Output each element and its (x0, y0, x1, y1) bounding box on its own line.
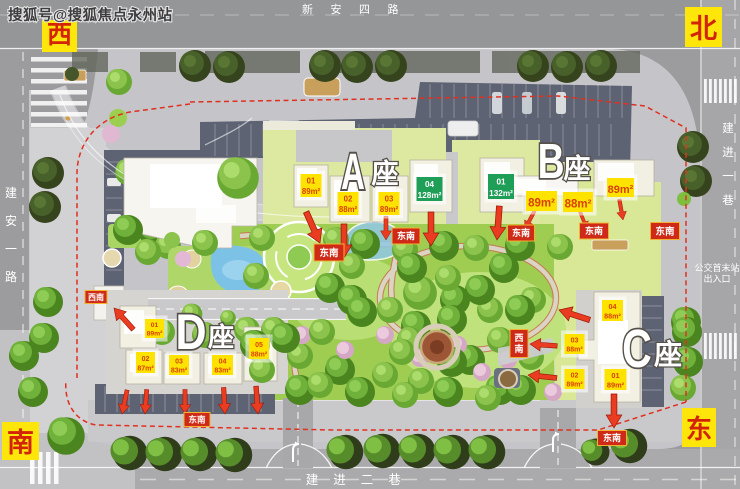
svg-text:东南: 东南 (655, 225, 675, 237)
svg-text:南: 南 (7, 428, 34, 458)
svg-text:04: 04 (425, 180, 435, 189)
svg-text:东南: 东南 (512, 227, 530, 238)
svg-text:03: 03 (385, 195, 394, 204)
svg-text:04: 04 (219, 358, 227, 365)
svg-text:建: 建 (5, 186, 17, 200)
svg-text:02: 02 (571, 372, 579, 379)
svg-text:01: 01 (496, 178, 506, 187)
svg-text:83m²: 83m² (214, 368, 231, 375)
svg-text:一: 一 (5, 242, 17, 256)
svg-text:01: 01 (151, 322, 159, 329)
svg-text:搜狐号@搜狐焦点永州站: 搜狐号@搜狐焦点永州站 (8, 6, 173, 24)
svg-text:建: 建 (722, 121, 734, 135)
svg-text:北: 北 (690, 14, 717, 44)
svg-text:巷: 巷 (722, 194, 734, 207)
svg-text:88m²: 88m² (604, 312, 621, 321)
svg-text:88m²: 88m² (565, 199, 592, 211)
svg-text:89m²: 89m² (607, 381, 625, 390)
svg-text:座: 座 (654, 338, 682, 370)
svg-text:87m²: 87m² (137, 366, 154, 373)
svg-text:座: 座 (372, 158, 399, 189)
svg-text:88m²: 88m² (566, 347, 583, 354)
svg-text:安: 安 (5, 213, 17, 228)
svg-text:128m²: 128m² (418, 191, 442, 200)
svg-text:出入口: 出入口 (703, 273, 730, 284)
svg-text:01: 01 (307, 177, 316, 186)
svg-text:B: B (538, 135, 565, 189)
svg-text:座: 座 (564, 153, 591, 184)
svg-text:89m²: 89m² (147, 331, 164, 338)
svg-text:东南: 东南 (319, 247, 339, 259)
svg-text:A: A (341, 144, 365, 201)
svg-text:03: 03 (571, 337, 579, 344)
svg-text:89m²: 89m² (302, 187, 321, 196)
svg-text:东南: 东南 (397, 230, 415, 241)
svg-text:89m²: 89m² (528, 198, 555, 210)
svg-text:西: 西 (514, 333, 523, 343)
svg-text:进: 进 (722, 146, 734, 159)
svg-text:D: D (175, 304, 206, 360)
svg-text:02: 02 (142, 356, 150, 363)
svg-text:公交首末站: 公交首末站 (694, 262, 739, 273)
svg-text:路: 路 (5, 269, 17, 284)
svg-text:01: 01 (611, 371, 619, 380)
svg-text:04: 04 (609, 302, 617, 311)
svg-text:建进二巷: 建进二巷 (306, 473, 416, 487)
svg-text:C: C (622, 320, 652, 380)
svg-text:西: 西 (47, 21, 72, 49)
svg-text:05: 05 (255, 342, 263, 349)
svg-text:89m²: 89m² (380, 205, 399, 214)
svg-text:东: 东 (686, 414, 712, 444)
svg-text:83m²: 83m² (171, 368, 188, 375)
svg-text:新安四路: 新安四路 (302, 2, 416, 16)
svg-text:东南: 东南 (188, 415, 206, 425)
svg-text:89m²: 89m² (608, 184, 634, 196)
svg-text:东南: 东南 (603, 432, 621, 443)
svg-text:88m²: 88m² (339, 205, 358, 214)
svg-text:88m²: 88m² (251, 352, 268, 359)
svg-text:南: 南 (514, 343, 523, 354)
svg-text:132m²: 132m² (489, 189, 513, 198)
svg-text:一: 一 (722, 171, 734, 183)
svg-text:座: 座 (208, 322, 234, 352)
svg-text:89m²: 89m² (566, 382, 583, 389)
svg-text:东南: 东南 (585, 225, 603, 236)
svg-text:西南: 西南 (88, 292, 104, 302)
